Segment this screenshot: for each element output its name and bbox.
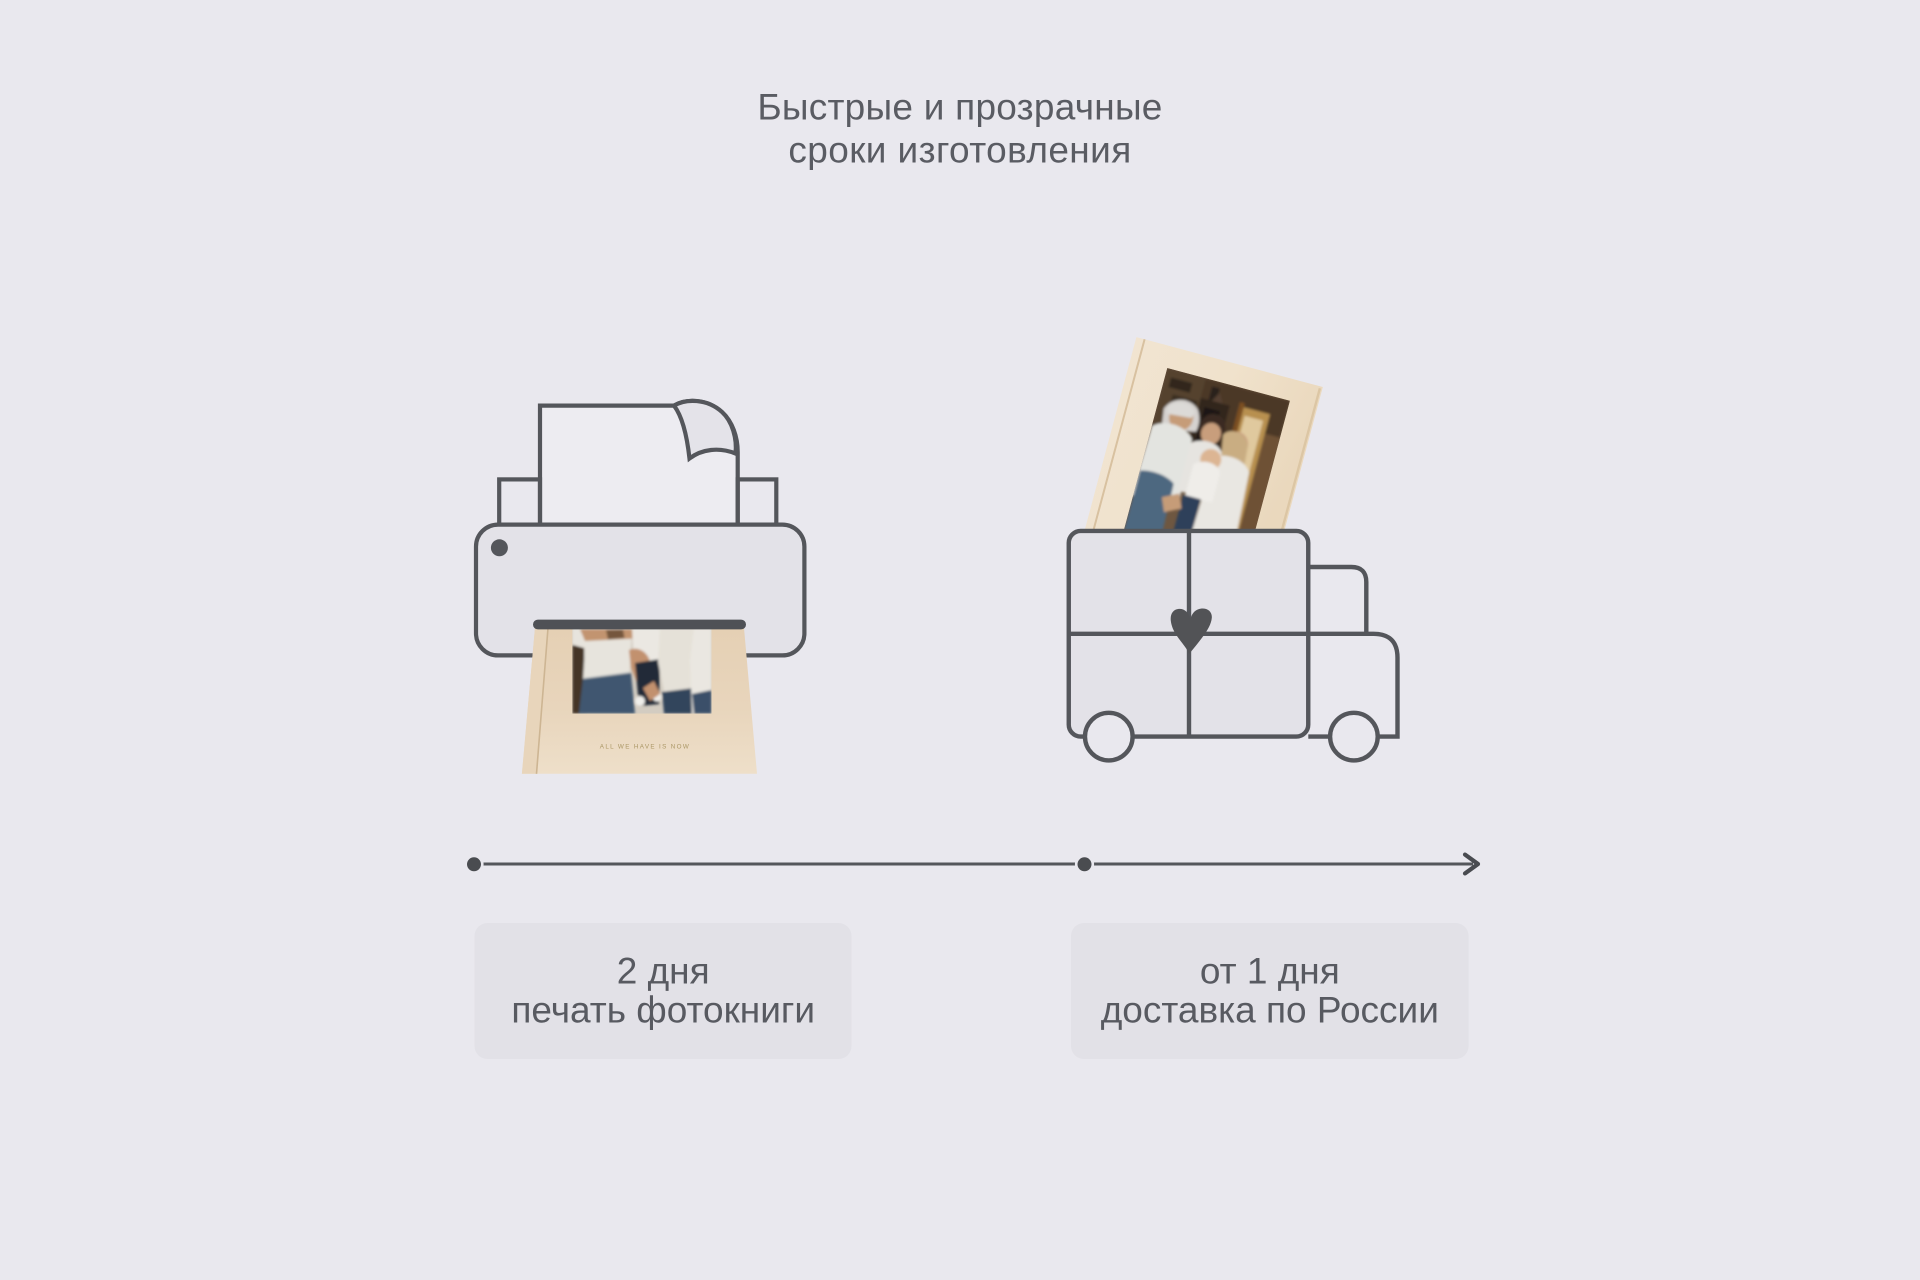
svg-text:печать фотокниги: печать фотокниги bbox=[511, 990, 815, 1031]
svg-text:сроки изготовления: сроки изготовления bbox=[788, 130, 1131, 171]
svg-text:от 1 дня: от 1 дня bbox=[1200, 950, 1340, 991]
svg-text:доставка по России: доставка по России bbox=[1101, 990, 1439, 1031]
svg-text:ALL WE HAVE IS NOW: ALL WE HAVE IS NOW bbox=[600, 744, 690, 751]
svg-text:Быстрые и прозрачные: Быстрые и прозрачные bbox=[757, 87, 1162, 128]
svg-text:2 дня: 2 дня bbox=[617, 950, 710, 991]
